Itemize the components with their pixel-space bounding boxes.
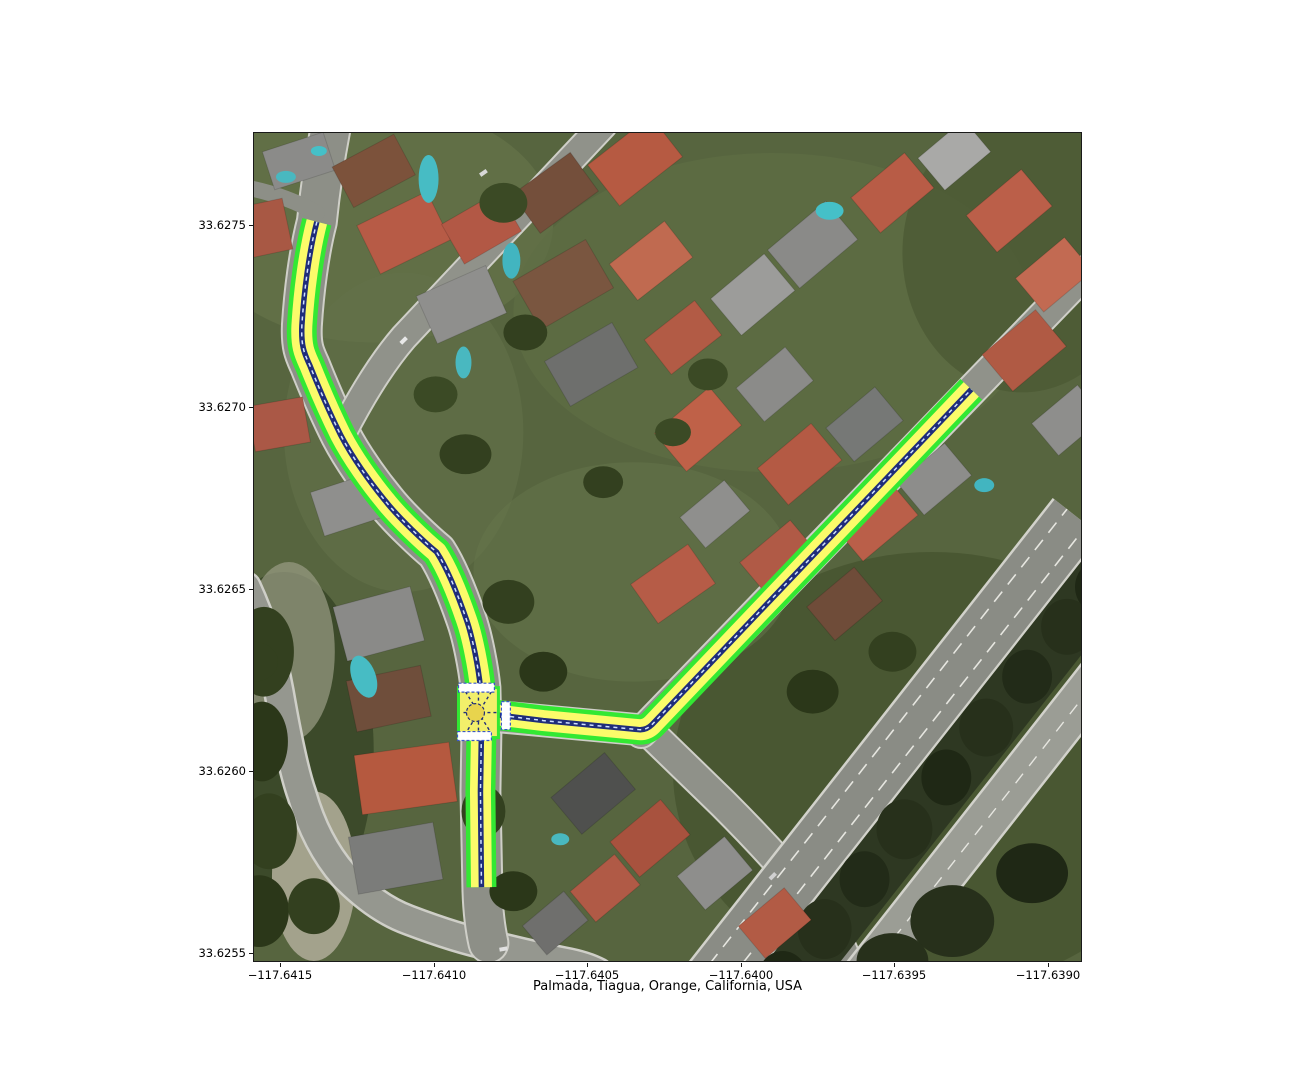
y-tick-mark <box>249 589 253 590</box>
y-tick-label: 33.6255 <box>158 946 246 960</box>
x-tick-mark <box>280 963 281 967</box>
x-tick-mark <box>1048 963 1049 967</box>
figure-canvas: −117.6415 −117.6410 −117.6405 −117.6400 … <box>0 0 1297 1080</box>
y-tick-mark <box>249 407 253 408</box>
y-tick-label: 33.6270 <box>158 400 246 414</box>
y-tick-label: 33.6275 <box>158 218 246 232</box>
y-tick-mark <box>249 953 253 954</box>
y-tick-label: 33.6260 <box>158 764 246 778</box>
x-tick-mark <box>434 963 435 967</box>
map-plot-area <box>253 132 1082 962</box>
x-tick-label: −117.6390 <box>998 968 1098 982</box>
x-tick-label: −117.6415 <box>230 968 330 982</box>
map-title: Palmada, Tiagua, Orange, California, USA <box>400 979 935 994</box>
y-tick-label: 33.6265 <box>158 582 246 596</box>
y-tick-mark <box>249 225 253 226</box>
x-tick-mark <box>587 963 588 967</box>
y-tick-mark <box>249 771 253 772</box>
x-tick-mark <box>894 963 895 967</box>
aerial-map <box>254 133 1081 961</box>
x-tick-mark <box>741 963 742 967</box>
